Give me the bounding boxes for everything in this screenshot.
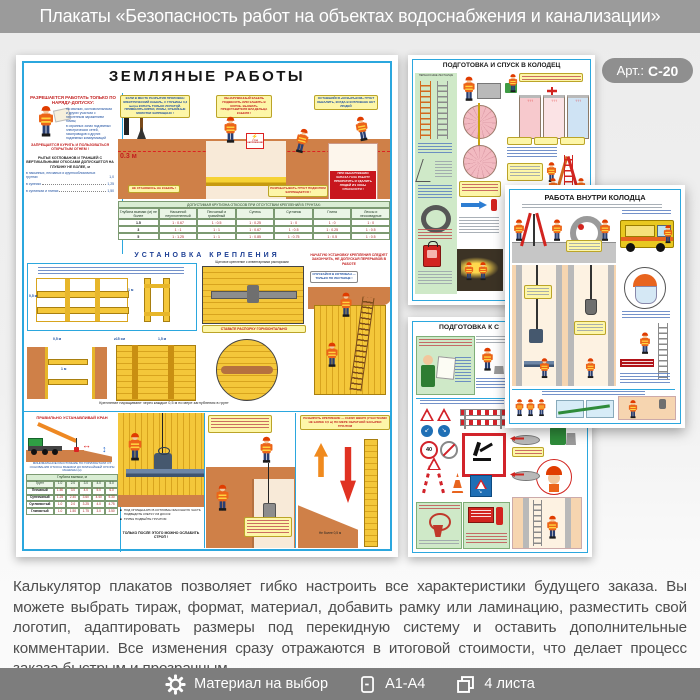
sheets-icon [455,674,476,695]
hoist-cable [533,214,535,246]
permit-column: РАЗРЕШАЕТСЯ РАБОТАТЬ ТОЛЬКО ПО НАРЯДУ-ДО… [24,93,123,254]
valve-step-2: ТРУБЫ ПОДБЕЙТЕ ГРУНТОМ [124,518,167,522]
inner-triangle [475,479,487,489]
lowering-panel [206,413,296,548]
worker-figure [545,514,560,540]
bracing-note: Крепление наращивают через каждые 0,5 м … [44,401,284,405]
shield-bracing: Щитовое крепление с инвентарными распорк… [202,261,302,324]
signs-caption [420,400,504,405]
bottom-band [512,389,675,420]
vest [549,484,559,492]
extinguisher [496,507,503,525]
bubble [507,163,543,181]
gas-arrows: ↑↑↑ [520,98,540,103]
helmet [546,466,562,475]
equipment-panel-2 [463,502,510,549]
well-mouth [477,83,501,99]
diagram-caption-lines [38,267,184,274]
diagram-notes [435,161,452,179]
road-signs-zone: ↙ ↘ 40 [416,398,508,499]
extract-arrow-up [314,443,328,477]
shield-photo [202,266,304,324]
blue-circle-sign: ↙ [421,425,433,437]
depth-item-value: 1,0 [109,175,114,179]
spacer-bubble: СТАВЬТЕ РАСПОРКУ ГОРИЗОНТАЛЬНО [202,325,306,333]
subtitle-lines [522,204,662,208]
header-bar: Плакаты «Безопасность работ на объектах … [0,0,700,33]
worker-figure [461,75,477,102]
page-title: Плакаты «Безопасность работ на объектах … [40,6,661,27]
manhole-cover-bottom [463,145,497,179]
inside-right-column [618,265,675,386]
trench-section-1: 0,5 м 1 м [27,335,107,399]
depth-item-value: 1,50 [107,189,114,193]
dim-1m: 1 м [128,288,133,292]
tripod-sign [420,457,448,493]
ladder-orange [420,81,431,139]
poster-inside-well[interactable]: РАБОТА ВНУТРИ КОЛОДЦА [505,185,685,428]
crane-hook [74,447,79,452]
lamp-lens [427,250,437,258]
well-section-pink: ↑↑↑ [519,95,541,139]
spacer-detail-circle [216,339,278,401]
well-captions [507,137,585,143]
slope-table-caption: ДОПУСТИМАЯ КРУТИЗНА ОТКОСОВ ПРИ ОТСУТСТВ… [118,201,390,208]
bracing-ladder-panel: НАЧАТУЮ УСТАНОВКУ КРЕПЛЕНИЯ СЛЕДУЕТ ЗАКО… [308,253,390,405]
arrow-glyph: ↘ [478,489,482,495]
person-body [421,365,435,387]
slope-table: ДОПУСТИМАЯ КРУТИЗНА ОТКОСОВ ПРИ ОТСУТСТВ… [118,201,390,240]
description-text: Калькулятор плакатов позволяет гибко нас… [13,577,687,680]
shovel-blade [137,127,146,139]
worker-figure [324,341,340,368]
shoring-beam [37,291,129,298]
worker-figure [352,114,372,143]
helmet-shield-circle [624,267,666,309]
rope [268,463,269,505]
poster-earthworks-title: ЗЕМЛЯНЫЕ РАБОТЫ [24,68,390,85]
caption-chip [507,137,532,145]
gas-arrows: ↑↑↑ [544,98,564,103]
depth-item-label: в насыпных, песчаных и крупнообломочных … [26,171,107,179]
digger-ground [473,458,491,461]
extinguisher [491,199,497,211]
stop-voltage-text: СТОЙ НАПРЯЖЕНИЕ [247,140,263,144]
plank-post [168,345,174,399]
shield-caption: Щитовое крепление с инвентарными распорк… [202,261,302,265]
footer-item-material: Материал на выбор [165,674,328,695]
manhole-lid [512,471,540,481]
footer-sheets-label: 4 листа [484,676,534,692]
shoring-post [95,279,100,321]
dim-plank: ≥15 см [114,337,125,341]
truck-cargo-door [625,225,655,237]
article-code: С-20 [648,63,678,79]
truck-panel [618,210,675,262]
jack-body [247,285,259,303]
bubble-cable-dig: ЕСЛИ В МЕСТЕ РАЗРЫТИЯ ПРОЛОЖЕН ЭЛЕКТРИЧЕ… [120,95,190,118]
article-badge: Арт.: С-20 [602,58,693,83]
plank-wall [116,345,196,401]
hanging-lantern [659,399,666,409]
wheel [42,449,48,455]
barrier-post [464,409,466,429]
worker-figure [222,115,239,144]
scene-notes [459,217,499,233]
footer-bar: Материал на выбор А1-А4 4 листа [0,668,700,700]
well-cross-section [512,265,616,386]
valve-ground [118,495,204,507]
panel-notes [466,533,507,545]
worker-figure [514,398,525,417]
band-caption [542,391,645,395]
bracing-warning: НАЧАТУЮ УСТАНОВКУ КРЕПЛЕНИЯ СЛЕДУЕТ ЗАКО… [308,253,390,266]
footer-material-label: Материал на выбор [194,676,328,692]
manhole-lid [512,435,540,445]
permit-item-2: в охранных зонах подземных электрических… [66,124,114,140]
notes [620,373,670,383]
valve-note: ТОЛЬКО ПОСЛЕ ЭТОГО МОЖНО ОСЛАБИТЬ СТРОП … [120,531,202,539]
slope-table-grid: Глубина выемки (м) не болееНасыпной неуп… [118,208,390,240]
soil-left [27,347,45,399]
wall-ladder [658,323,668,379]
red-sign-strip [620,359,654,367]
footer-format-label: А1-А4 [385,676,425,692]
footer-item-sheets: 4 листа [455,674,534,695]
face-shield [635,286,657,304]
bubble [524,285,552,299]
shoring-spacer [144,312,170,316]
worker-figure [214,483,231,512]
dim-15m: 1,5 м [158,337,166,341]
caption-chip [534,137,559,145]
poster-earthworks-frame: ЗЕМЛЯНЫЕ РАБОТЫ РАЗРЕШАЕТСЯ РАБОТАТЬ ТОЛ… [22,61,392,551]
worker-figure [525,398,536,417]
truck-caption [622,210,671,216]
worker-figure [126,431,144,462]
shaft-ladder [533,500,542,546]
spacer-bar [48,359,88,365]
notes [622,311,670,319]
depth-item-value: 1,25 [107,182,114,186]
panel-notes [419,540,459,546]
detour-sign: ↘ [470,475,492,497]
tripod-triangle [427,457,441,470]
permit-item-1: на свалках, скотомогильниках и других уч… [66,107,114,123]
article-label: Арт.: [617,63,644,78]
shaft-wall [608,265,614,386]
well-section-mid: ↑↑↑ [543,95,565,139]
worker-figure [550,218,564,242]
wheel [31,449,37,455]
shaft-wall [556,265,562,386]
crane-note: МИНИМАЛЬНОЕ РАССТОЯНИЕ ПО ГОРИЗОНТАЛИ ОТ… [26,462,118,473]
spacer-log [221,366,273,374]
worker-figure [480,346,495,372]
dismantle-dim: Не более 0,5 м [302,531,358,535]
spacer-bar [48,379,88,385]
shaft-scene [512,497,582,549]
panel-caption [419,505,460,510]
worker-figure [536,398,547,417]
ladders-caption: ПЕРЕНОСНЫЕ ЛЕСТНИЦЫ [416,74,456,77]
ladder-notes [418,143,452,155]
crane-scene: ↔ ↕ [26,420,118,462]
vertical-arrow: ↕ [102,444,107,454]
valve-panel: ■ПОД ОПУЩЕННУЮ В КОТЛОВАН ФАСОННУЮ ЧАСТЬ… [118,413,205,548]
ladders-column: ПЕРЕНОСНЫЕ ЛЕСТНИЦЫ [415,73,457,294]
worker-figure [36,104,56,138]
bracing-diagram-box: 1 м 0,5 м [27,263,197,331]
bubble-no-stand-cable: НЕ СТАНОВИСЬ НА КАБЕЛЬ ! [128,185,180,193]
document-sheet [436,356,456,380]
safety-lamp [423,245,441,267]
ladder-bubble: СПУСКАЙСЯ В КОТЛОВАН — ТОЛЬКО ПО ЛЕСТНИЦ… [310,271,358,283]
plank-post [132,345,138,399]
notes [476,378,506,390]
worker-figure [598,218,612,242]
gas-warning-box: ПРИ ОБНАРУЖЕНИИ ЗАПАХА ГАЗА РАБОТУ ПРЕКР… [330,171,376,199]
section-divider [24,411,390,412]
horizontal-arrow: ↔ [82,440,91,450]
more-notes [418,185,452,199]
wheel [52,449,58,455]
hydrant [547,87,557,95]
digger-shovel [479,443,492,452]
pump-body [550,427,566,445]
poster-inside-well-frame: РАБОТА ВНУТРИ КОЛОДЦА [509,189,681,424]
valve-handwheel [158,447,170,455]
bubble-no-undercut: РАЗРАБАТЫВАТЬ ГРУНТ ПОДКОПОМ ЗАПРЕЩАЕТСЯ… [268,185,328,197]
bubble [574,321,606,335]
dim-05m: 0,5 м [29,294,37,298]
lowering-bubble-2 [244,517,292,537]
shoring-frame-front [36,278,128,322]
trench-section-2: ≥15 см 1,5 м [112,335,198,399]
equipment-panel-1 [416,502,462,549]
caption-bubble [519,73,583,82]
sheeting-wall [364,439,378,547]
lamp-handle [428,241,438,247]
bubble [566,240,602,252]
trench-gap [45,347,95,399]
preparation-right-strip [510,427,584,547]
crane-boom [37,422,77,442]
shaft-wall [565,498,571,548]
lowering-rope [536,265,538,335]
briefing-box [416,336,475,395]
pipe [126,469,204,477]
dim-1m: 1 м [61,367,66,371]
lamp-scene [618,396,676,420]
lamp-notes [418,271,452,285]
descent-middle-column [457,73,503,292]
right-notes [507,147,557,159]
crane-panel: ПРАВИЛЬНО УСТАНАВЛИВАЙ КРАН ↔ ↕ МИНИМАЛЬ… [24,413,121,552]
worker-figure [477,261,489,281]
poster-earthworks[interactable]: ЗЕМЛЯНЫЕ РАБОТЫ РАЗРЕШАЕТСЯ РАБОТАТЬ ТОЛ… [16,55,398,557]
dismantle-bubble: РАЗБИРАТЬ КРЕПЛЕНИЕ — СНИЗУ ВВЕРХ (УЧАСТ… [300,415,390,430]
truck-wheel [656,243,665,252]
valve-instructions: ■ПОД ОПУЩЕННУЮ В КОТЛОВАН ФАСОННУЮ ЧАСТЬ… [120,509,202,521]
lantern-rope [590,265,592,301]
descent-bubble [459,181,501,197]
dim-label [512,447,544,457]
footer-item-format: А1-А4 [358,674,425,695]
worker-figure [258,435,275,464]
vertical-slopes-note: РЫТЬЕ КОТЛОВАНОВ И ТРАНШЕЙ С ВЕРТИКАЛЬНЫ… [26,156,114,169]
no-fire-warning: ЗАПРЕЩАЕТСЯ КУРИТЬ И ПОЛЬЗОВАТЬСЯ ОТКРЫТ… [26,143,114,152]
worker-figure [463,261,475,281]
worker-figure [538,357,551,379]
grab-bucket [433,525,443,537]
worker-figure [638,331,652,355]
manhole-cover-top [463,105,497,139]
notes [476,336,508,344]
stop-voltage-sign: ⚡ СТОЙ НАПРЯЖЕНИЕ [246,133,264,149]
warning-triangle-sign [437,408,451,421]
worker-figure [338,291,354,318]
depth-item-label: в супесях [26,182,41,186]
poster-preparation-title: ПОДГОТОВКА К С [439,324,499,331]
bubble-cornice: ОСТАВШИЙСЯ «КОЗЫРЬКОМ» ГРУНТ ОБВАЛИТЬ, К… [314,95,378,110]
gear-icon [165,674,186,695]
barrier-post [500,409,502,429]
crane-slope [82,450,112,462]
depth-limits-list: в насыпных, песчаных и крупнообломочных … [26,171,114,193]
crane-table-caption: Глубина выемки, м [26,474,118,481]
product-card: Плакаты «Безопасность работ на объектах … [0,0,700,700]
dim-05m: 0,5 м [53,337,61,341]
valve-step-1: ПОД ОПУЩЕННУЮ В КОТЛОВАН ФАСОННУЮ ЧАСТЬ … [124,509,202,517]
document-icon [358,674,377,695]
backfill-arrow-down [340,447,356,503]
poster-descent-title: ПОДГОТОВКА И СПУСК В КОЛОДЕЦ [413,62,590,69]
briefing-heading [419,339,472,347]
person-head [423,355,433,365]
worker-figure [512,218,526,242]
worker-figure [662,224,674,244]
gas-arrows: ↑↑↑ [568,98,588,103]
shoring-spacer [144,284,170,288]
safety-lantern [585,299,597,315]
prep-column-2 [476,336,508,393]
warning-triangle-sign [420,408,434,421]
worker-figure [584,357,597,379]
ladder-gray [437,81,448,139]
worker-portrait-circle [536,459,572,495]
shoring-beam [37,307,129,314]
valve-lowered [529,329,543,343]
well-section-blue: ↑↑↑ [567,95,589,139]
red-notes [418,229,452,239]
shoring-frame-side [140,278,174,320]
worker-figure [507,73,519,93]
crane-table-grid: Грунт1.02.03.04.05.0Песчаный1.503.04.05.… [26,481,118,515]
blue-circle-sign: ↘ [438,425,450,437]
depth-03-label: 0.3 м [120,153,137,160]
dismantle-panel: РАЗБИРАТЬ КРЕПЛЕНИЕ — СНИЗУ ВВЕРХ (УЧАСТ… [298,413,390,548]
truck-wheel [626,243,635,252]
trench-scene: 0.3 м ЕСЛИ В МЕСТЕ РАЗРЫТИЯ ПРОЛОЖЕН ЭЛЕ… [118,93,390,199]
direction-arrow [461,201,487,209]
shoring-post [65,279,70,321]
bucket [494,366,504,374]
caption-chip [560,137,585,145]
roadworks-sign [462,433,506,477]
worker-figure [627,399,639,419]
dark-scene [457,249,503,291]
fire-cabinet [468,507,494,523]
pump-bucket [566,433,576,445]
lowering-bubble [208,415,272,433]
depth-item-label: в суглинках и глинах [26,189,58,193]
poster-inside-well-title: РАБОТА ВНУТРИ КОЛОДЦА [510,193,680,202]
briefing-notes [455,357,471,383]
